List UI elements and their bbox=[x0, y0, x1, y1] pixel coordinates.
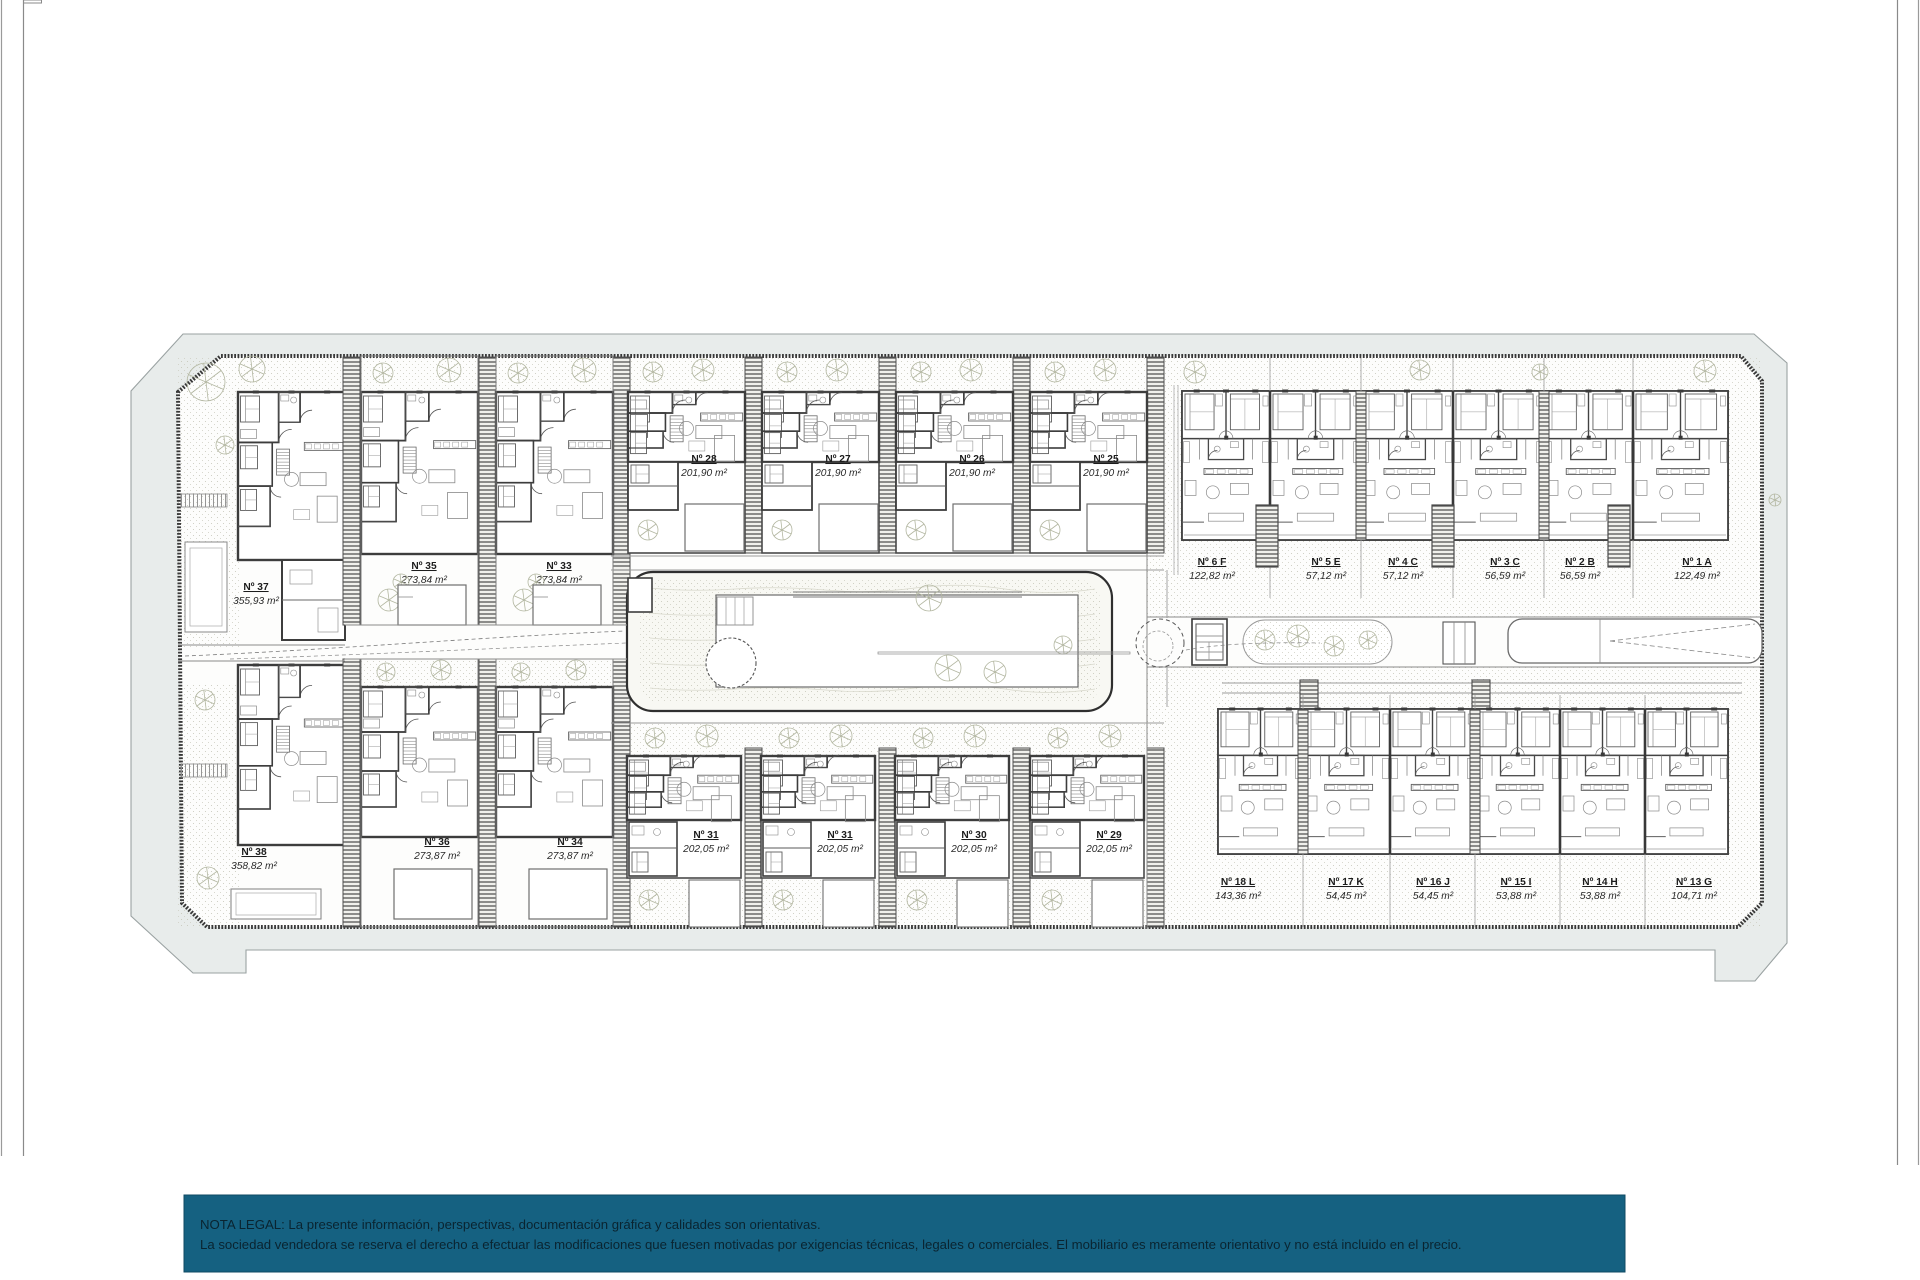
svg-text:Nº 33: Nº 33 bbox=[546, 561, 572, 572]
svg-text:Nº 3 C: Nº 3 C bbox=[1490, 557, 1520, 568]
svg-text:Nº 31: Nº 31 bbox=[827, 830, 853, 841]
svg-text:Nº 25: Nº 25 bbox=[1093, 454, 1119, 465]
svg-text:Nº 29: Nº 29 bbox=[1096, 830, 1122, 841]
svg-text:NOTA LEGAL: La presente inform: NOTA LEGAL: La presente información, per… bbox=[200, 1217, 821, 1232]
svg-text:Nº 31: Nº 31 bbox=[693, 830, 719, 841]
svg-text:355,93 m²: 355,93 m² bbox=[233, 596, 279, 607]
svg-text:Nº 6 F: Nº 6 F bbox=[1198, 557, 1227, 568]
svg-text:201,90 m²: 201,90 m² bbox=[814, 468, 861, 479]
svg-text:143,36 m²: 143,36 m² bbox=[1215, 891, 1261, 902]
svg-text:Nº 26: Nº 26 bbox=[959, 454, 985, 465]
svg-text:201,90 m²: 201,90 m² bbox=[680, 468, 727, 479]
svg-text:122,82 m²: 122,82 m² bbox=[1189, 571, 1235, 582]
svg-text:273,87 m²: 273,87 m² bbox=[546, 851, 593, 862]
svg-text:Nº 35: Nº 35 bbox=[411, 561, 437, 572]
svg-text:Nº 27: Nº 27 bbox=[825, 454, 851, 465]
svg-text:358,82 m²: 358,82 m² bbox=[231, 861, 277, 872]
svg-text:57,12 m²: 57,12 m² bbox=[1306, 571, 1347, 582]
svg-text:Nº 37: Nº 37 bbox=[243, 582, 269, 593]
svg-text:57,12 m²: 57,12 m² bbox=[1383, 571, 1424, 582]
svg-text:Nº 13 G: Nº 13 G bbox=[1676, 877, 1712, 888]
svg-text:201,90 m²: 201,90 m² bbox=[1082, 468, 1129, 479]
svg-text:53,88 m²: 53,88 m² bbox=[1496, 891, 1537, 902]
svg-text:Nº 28: Nº 28 bbox=[691, 454, 717, 465]
svg-text:53,88 m²: 53,88 m² bbox=[1580, 891, 1621, 902]
svg-text:Nº 14 H: Nº 14 H bbox=[1582, 877, 1617, 888]
svg-text:104,71 m²: 104,71 m² bbox=[1671, 891, 1717, 902]
svg-text:122,49 m²: 122,49 m² bbox=[1674, 571, 1720, 582]
svg-text:54,45 m²: 54,45 m² bbox=[1413, 891, 1454, 902]
svg-text:273,87 m²: 273,87 m² bbox=[413, 851, 460, 862]
svg-text:Nº 30: Nº 30 bbox=[961, 830, 987, 841]
svg-text:Nº 16 J: Nº 16 J bbox=[1416, 877, 1450, 888]
svg-text:Nº 34: Nº 34 bbox=[557, 837, 583, 848]
svg-text:Nº 36: Nº 36 bbox=[424, 837, 450, 848]
svg-text:Nº 5 E: Nº 5 E bbox=[1311, 557, 1340, 568]
svg-text:Nº 2 B: Nº 2 B bbox=[1565, 557, 1595, 568]
svg-text:Nº 4 C: Nº 4 C bbox=[1388, 557, 1418, 568]
svg-text:Nº 15 I: Nº 15 I bbox=[1501, 877, 1532, 888]
svg-text:202,05 m²: 202,05 m² bbox=[950, 844, 997, 855]
svg-text:Nº 38: Nº 38 bbox=[241, 847, 267, 858]
svg-text:Nº 17 K: Nº 17 K bbox=[1328, 877, 1364, 888]
svg-text:56,59 m²: 56,59 m² bbox=[1560, 571, 1601, 582]
svg-text:202,05 m²: 202,05 m² bbox=[682, 844, 729, 855]
svg-text:Nº 1 A: Nº 1 A bbox=[1682, 557, 1712, 568]
svg-text:202,05 m²: 202,05 m² bbox=[816, 844, 863, 855]
svg-text:La sociedad vendedora se reser: La sociedad vendedora se reserva el dere… bbox=[200, 1237, 1462, 1252]
svg-text:201,90 m²: 201,90 m² bbox=[948, 468, 995, 479]
svg-text:202,05 m²: 202,05 m² bbox=[1085, 844, 1132, 855]
svg-text:56,59 m²: 56,59 m² bbox=[1485, 571, 1526, 582]
svg-text:Nº 18 L: Nº 18 L bbox=[1221, 877, 1255, 888]
svg-text:54,45 m²: 54,45 m² bbox=[1326, 891, 1367, 902]
